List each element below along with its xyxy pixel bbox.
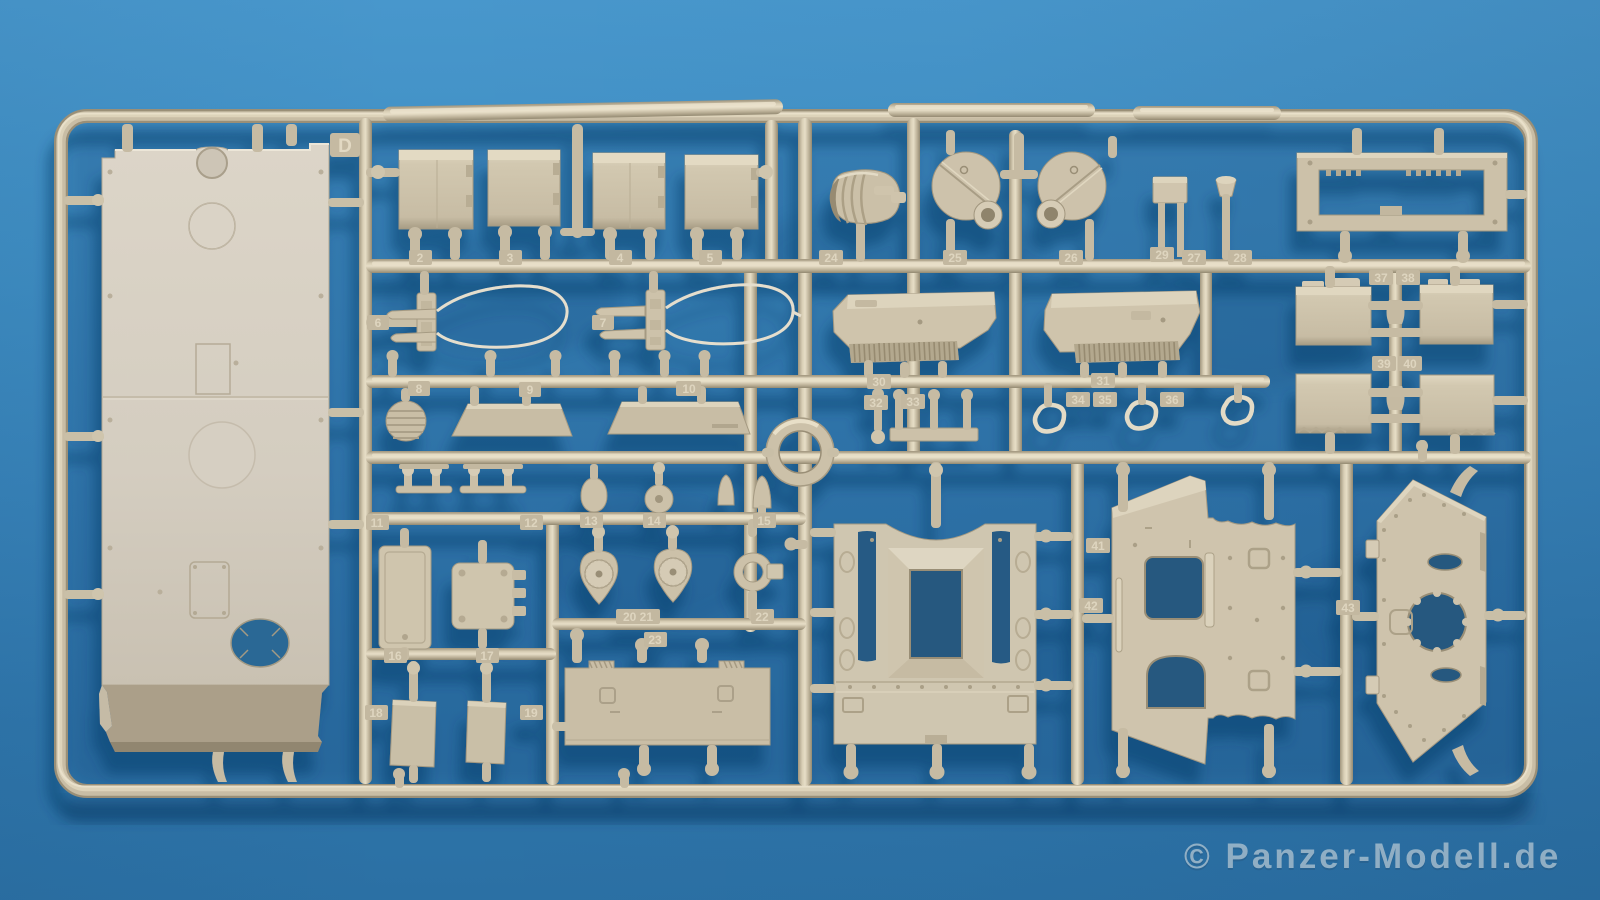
svg-text:2: 2 xyxy=(417,251,424,265)
svg-text:16: 16 xyxy=(388,649,402,663)
svg-text:22: 22 xyxy=(755,610,769,624)
svg-text:5: 5 xyxy=(707,251,714,265)
svg-text:41: 41 xyxy=(1091,539,1105,553)
svg-text:11: 11 xyxy=(371,516,384,530)
svg-text:© Panzer-Modell.de: © Panzer-Modell.de xyxy=(1184,837,1561,876)
svg-text:12: 12 xyxy=(524,516,538,530)
svg-text:3: 3 xyxy=(507,251,514,265)
svg-text:29: 29 xyxy=(1155,248,1169,262)
svg-text:8: 8 xyxy=(416,382,423,396)
svg-text:35: 35 xyxy=(1098,393,1112,407)
svg-text:24: 24 xyxy=(824,251,838,265)
svg-text:32: 32 xyxy=(869,396,883,410)
svg-text:4: 4 xyxy=(617,251,624,265)
svg-text:23: 23 xyxy=(648,633,662,647)
svg-text:30: 30 xyxy=(872,375,886,389)
svg-text:20 21: 20 21 xyxy=(623,610,653,624)
svg-text:43: 43 xyxy=(1341,601,1355,615)
svg-text:14: 14 xyxy=(647,514,661,528)
svg-text:18: 18 xyxy=(369,706,383,720)
svg-text:42: 42 xyxy=(1084,599,1098,613)
svg-text:26: 26 xyxy=(1064,251,1078,265)
svg-text:28: 28 xyxy=(1233,251,1247,265)
svg-text:15: 15 xyxy=(757,514,771,528)
svg-text:39: 39 xyxy=(1377,357,1391,371)
svg-text:33: 33 xyxy=(906,395,920,409)
svg-text:31: 31 xyxy=(1096,374,1110,388)
svg-text:19: 19 xyxy=(524,706,538,720)
svg-text:6: 6 xyxy=(375,316,382,330)
svg-text:34: 34 xyxy=(1071,393,1085,407)
svg-text:10: 10 xyxy=(682,382,696,396)
svg-text:40: 40 xyxy=(1403,357,1417,371)
svg-text:9: 9 xyxy=(527,383,534,397)
svg-text:36: 36 xyxy=(1165,393,1179,407)
svg-text:13: 13 xyxy=(584,514,598,528)
svg-text:27: 27 xyxy=(1187,251,1201,265)
svg-text:17: 17 xyxy=(480,649,494,663)
svg-text:38: 38 xyxy=(1401,271,1415,285)
svg-text:7: 7 xyxy=(600,316,607,330)
svg-text:25: 25 xyxy=(948,251,962,265)
svg-text:D: D xyxy=(338,136,352,157)
svg-text:37: 37 xyxy=(1374,271,1388,285)
